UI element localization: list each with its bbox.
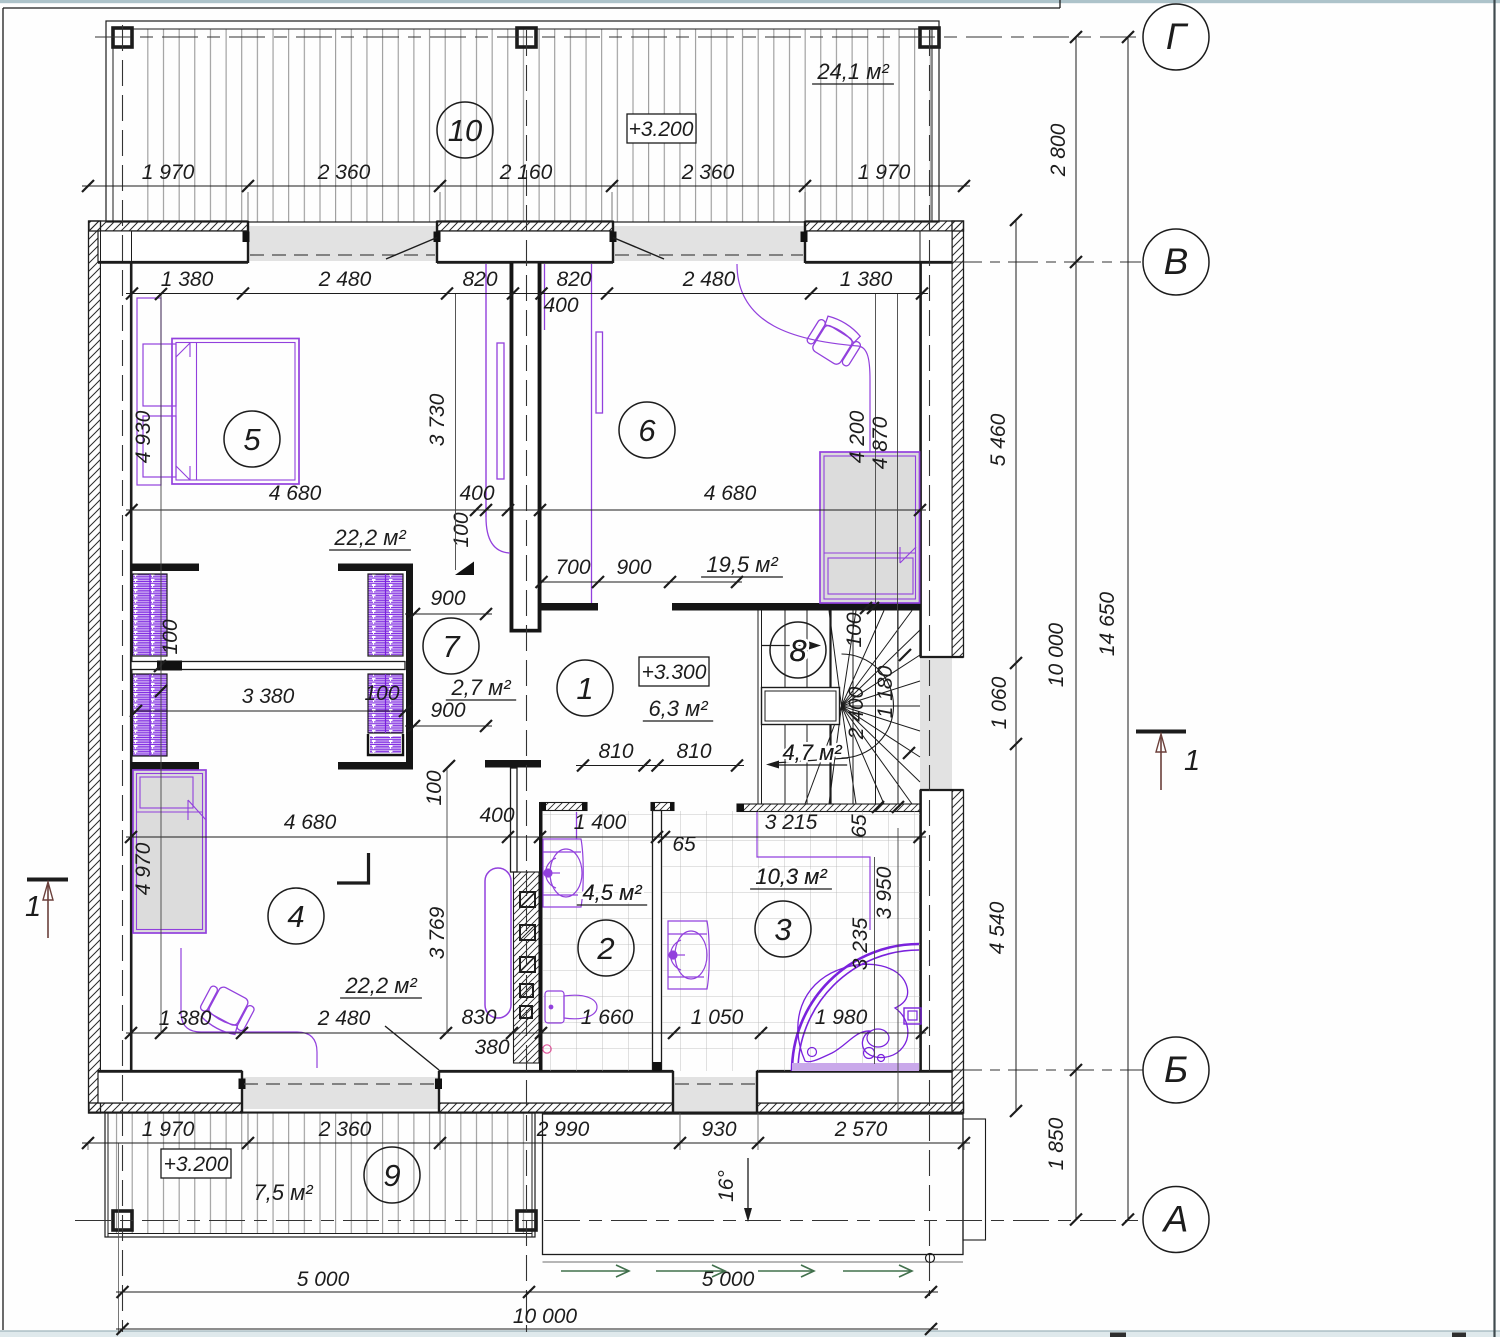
svg-text:1 380: 1 380	[840, 268, 893, 291]
svg-text:2 160: 2 160	[499, 161, 553, 184]
svg-text:8: 8	[789, 633, 807, 668]
svg-text:4: 4	[287, 899, 304, 934]
svg-text:2 360: 2 360	[318, 1118, 372, 1141]
svg-text:100: 100	[843, 612, 866, 647]
svg-text:1: 1	[1184, 745, 1200, 777]
svg-text:1 380: 1 380	[161, 268, 214, 291]
svg-text:1 050: 1 050	[691, 1006, 744, 1029]
svg-text:1 850: 1 850	[1045, 1117, 1068, 1170]
svg-text:4 200: 4 200	[846, 410, 869, 463]
svg-text:1 400: 1 400	[574, 811, 627, 834]
svg-text:+3.200: +3.200	[164, 1153, 229, 1176]
svg-text:В: В	[1164, 241, 1189, 282]
svg-text:5 000: 5 000	[297, 1268, 350, 1291]
svg-text:2 570: 2 570	[834, 1118, 888, 1141]
svg-text:930: 930	[701, 1118, 736, 1141]
svg-text:6,3 м²: 6,3 м²	[648, 696, 708, 721]
svg-text:400: 400	[479, 804, 514, 827]
svg-text:Б: Б	[1164, 1049, 1188, 1090]
svg-text:400: 400	[543, 294, 578, 317]
svg-text:4 870: 4 870	[869, 416, 892, 469]
svg-text:1: 1	[576, 671, 593, 706]
svg-text:1 980: 1 980	[815, 1006, 868, 1029]
svg-text:100: 100	[423, 770, 446, 805]
svg-text:16°: 16°	[715, 1170, 738, 1202]
svg-text:19,5 м²: 19,5 м²	[706, 552, 778, 577]
svg-text:10 000: 10 000	[513, 1305, 578, 1328]
svg-text:810: 810	[676, 740, 711, 763]
svg-text:3 235: 3 235	[849, 917, 872, 970]
svg-text:4 930: 4 930	[132, 410, 155, 463]
svg-text:4 680: 4 680	[284, 811, 337, 834]
svg-text:810: 810	[598, 740, 633, 763]
svg-text:10 000: 10 000	[1045, 623, 1068, 688]
svg-text:2: 2	[596, 931, 614, 966]
svg-text:100: 100	[159, 619, 182, 654]
svg-text:7,5 м²: 7,5 м²	[253, 1180, 313, 1205]
svg-text:2 990: 2 990	[536, 1118, 590, 1141]
svg-text:4 970: 4 970	[132, 842, 155, 895]
svg-text:4,5 м²: 4,5 м²	[582, 880, 642, 905]
svg-text:5 460: 5 460	[987, 413, 1010, 466]
svg-text:700: 700	[555, 556, 590, 579]
svg-text:2 480: 2 480	[317, 1007, 371, 1030]
svg-text:+3.300: +3.300	[642, 661, 707, 684]
svg-text:100: 100	[364, 682, 399, 705]
svg-text:5: 5	[243, 422, 261, 457]
svg-text:65: 65	[672, 833, 696, 856]
svg-text:1 060: 1 060	[988, 676, 1011, 729]
svg-text:22,2 м²: 22,2 м²	[333, 525, 406, 550]
svg-text:3: 3	[774, 912, 791, 947]
svg-text:3 769: 3 769	[426, 906, 449, 959]
svg-text:1 380: 1 380	[159, 1007, 212, 1030]
svg-text:900: 900	[430, 699, 465, 722]
svg-text:1 970: 1 970	[142, 161, 195, 184]
svg-text:4,7 м²: 4,7 м²	[782, 740, 842, 765]
svg-text:400: 400	[459, 482, 494, 505]
svg-text:7: 7	[442, 629, 461, 664]
svg-text:4 680: 4 680	[704, 482, 757, 505]
svg-text:10,3 м²: 10,3 м²	[755, 864, 827, 889]
svg-text:4 540: 4 540	[986, 901, 1009, 954]
svg-text:830: 830	[461, 1006, 496, 1029]
svg-text:1 970: 1 970	[858, 161, 911, 184]
svg-text:2 480: 2 480	[318, 268, 372, 291]
svg-text:820: 820	[556, 268, 591, 291]
svg-text:2 360: 2 360	[317, 161, 371, 184]
svg-text:6: 6	[638, 413, 656, 448]
svg-text:1 970: 1 970	[142, 1118, 195, 1141]
svg-text:3 215: 3 215	[765, 811, 818, 834]
svg-text:100: 100	[450, 512, 473, 547]
svg-text:Г: Г	[1166, 16, 1189, 57]
svg-text:900: 900	[430, 587, 465, 610]
svg-text:2 400: 2 400	[845, 686, 868, 740]
svg-text:+3.200: +3.200	[629, 118, 694, 141]
svg-text:3 730: 3 730	[426, 393, 449, 446]
svg-text:А: А	[1162, 1199, 1189, 1240]
svg-text:1 180: 1 180	[874, 665, 897, 718]
svg-text:3 950: 3 950	[873, 866, 896, 919]
svg-text:65: 65	[848, 814, 871, 838]
svg-text:2 360: 2 360	[681, 161, 735, 184]
svg-text:820: 820	[462, 268, 497, 291]
svg-text:10: 10	[448, 113, 482, 148]
svg-text:14 650: 14 650	[1096, 592, 1119, 657]
svg-text:2 480: 2 480	[682, 268, 736, 291]
svg-text:1: 1	[25, 891, 41, 923]
svg-text:2,7 м²: 2,7 м²	[450, 675, 511, 700]
svg-text:22,2 м²: 22,2 м²	[344, 973, 417, 998]
svg-text:900: 900	[616, 556, 651, 579]
svg-text:380: 380	[474, 1036, 509, 1059]
svg-text:4 680: 4 680	[269, 482, 322, 505]
svg-text:1 660: 1 660	[581, 1006, 634, 1029]
svg-text:2 800: 2 800	[1047, 123, 1070, 177]
svg-text:9: 9	[383, 1158, 400, 1193]
svg-text:3 380: 3 380	[242, 685, 295, 708]
svg-text:24,1 м²: 24,1 м²	[816, 59, 889, 84]
